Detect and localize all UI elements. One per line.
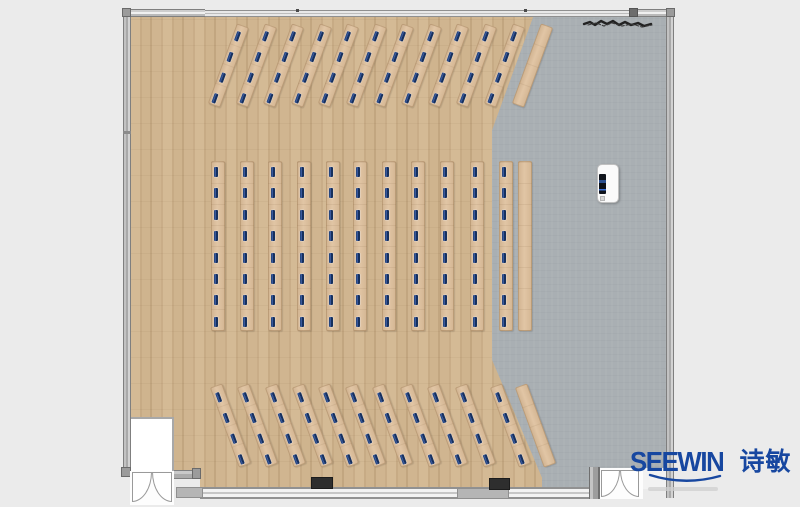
seat-marker	[364, 51, 371, 62]
seat-marker	[420, 433, 427, 444]
seat-marker	[474, 51, 481, 62]
seat-marker	[243, 274, 247, 284]
seat-marker	[385, 274, 389, 284]
seat-marker	[356, 295, 360, 305]
seat-marker	[438, 72, 445, 83]
seat-marker	[426, 30, 433, 41]
seat-marker	[211, 92, 218, 103]
presenter-podium	[597, 164, 619, 203]
seat-marker	[271, 231, 275, 241]
seat-marker	[281, 51, 288, 62]
seat-marker	[502, 231, 506, 241]
seat-marker	[447, 433, 454, 444]
sketch-mark	[582, 13, 654, 29]
seat-marker	[230, 433, 237, 444]
seat-marker	[277, 412, 284, 423]
seat-marker	[321, 92, 328, 103]
seat-marker	[502, 167, 506, 177]
seat-marker	[502, 274, 506, 284]
seat-marker	[345, 453, 352, 464]
entry-alcove	[131, 417, 174, 472]
seat-marker	[273, 72, 280, 83]
seat-marker	[300, 167, 304, 177]
seat-marker	[297, 391, 304, 402]
right-wall	[666, 9, 674, 498]
seat-marker	[271, 295, 275, 305]
seat-marker	[414, 210, 418, 220]
left-wall	[123, 9, 131, 468]
seat-marker	[473, 274, 477, 284]
seat-marker	[502, 295, 506, 305]
seat-marker	[218, 72, 225, 83]
seat-marker	[329, 253, 333, 263]
seat-marker	[329, 295, 333, 305]
seat-marker	[261, 30, 268, 41]
seat-marker	[329, 167, 333, 177]
seat-marker	[338, 433, 345, 444]
seat-marker	[372, 453, 379, 464]
brand-chinese-name: 诗敏	[739, 449, 791, 476]
seat-marker	[411, 72, 418, 83]
seat-marker	[502, 51, 509, 62]
seat-marker	[214, 253, 218, 263]
seat-marker	[330, 412, 337, 423]
seat-marker	[239, 92, 246, 103]
seat-marker	[233, 30, 240, 41]
seat-marker	[405, 391, 412, 402]
seat-marker	[356, 188, 360, 198]
seat-marker	[243, 231, 247, 241]
seat-marker	[222, 412, 229, 423]
seat-marker	[384, 412, 391, 423]
seat-marker	[271, 188, 275, 198]
seat-marker	[391, 51, 398, 62]
seat-marker	[214, 317, 218, 327]
seat-marker	[446, 51, 453, 62]
desk	[268, 161, 282, 331]
seat-marker	[319, 453, 326, 464]
seat-marker	[439, 412, 446, 423]
seat-marker	[309, 51, 316, 62]
seat-marker	[300, 274, 304, 284]
seat-marker	[473, 253, 477, 263]
seat-marker	[487, 92, 494, 103]
seat-marker	[385, 231, 389, 241]
seat-marker	[432, 391, 439, 402]
seat-marker	[466, 72, 473, 83]
seat-marker	[271, 167, 275, 177]
seat-marker	[453, 30, 460, 41]
door-jamb	[589, 467, 600, 499]
desk	[240, 161, 254, 331]
wall-column-block	[311, 477, 333, 489]
desk	[470, 161, 484, 331]
corner-post	[122, 8, 131, 17]
seat-marker	[356, 274, 360, 284]
seat-marker	[264, 453, 271, 464]
seat-marker	[454, 453, 461, 464]
seat-marker	[510, 433, 517, 444]
seat-marker	[215, 391, 222, 402]
seat-marker	[371, 30, 378, 41]
seat-marker	[329, 210, 333, 220]
seat-marker	[414, 188, 418, 198]
seat-marker	[246, 72, 253, 83]
seat-marker	[443, 231, 447, 241]
seat-marker	[414, 253, 418, 263]
seat-marker	[214, 231, 218, 241]
seat-marker	[343, 30, 350, 41]
seat-marker	[431, 92, 438, 103]
seat-marker	[443, 188, 447, 198]
seat-marker	[242, 391, 249, 402]
seat-marker	[414, 317, 418, 327]
seat-marker	[443, 253, 447, 263]
seat-marker	[214, 295, 218, 305]
seat-marker	[356, 210, 360, 220]
seat-marker	[460, 391, 467, 402]
desk	[499, 161, 513, 331]
seat-marker	[473, 210, 477, 220]
seat-marker	[300, 295, 304, 305]
desk	[326, 161, 340, 331]
desk	[411, 161, 425, 331]
seat-marker	[419, 51, 426, 62]
seat-marker	[301, 72, 308, 83]
seat-marker	[495, 391, 502, 402]
window-sill-block	[176, 487, 203, 498]
desk	[382, 161, 396, 331]
seat-marker	[473, 167, 477, 177]
seat-marker	[271, 317, 275, 327]
side-table	[518, 161, 532, 331]
seat-marker	[443, 317, 447, 327]
seat-marker	[376, 92, 383, 103]
seat-marker	[214, 210, 218, 220]
seat-marker	[377, 391, 384, 402]
desk	[440, 161, 454, 331]
seat-marker	[357, 412, 364, 423]
seat-marker	[300, 317, 304, 327]
seat-marker	[214, 274, 218, 284]
wall-column-block	[489, 478, 510, 490]
seat-marker	[414, 274, 418, 284]
seat-marker	[349, 92, 356, 103]
seat-marker	[271, 274, 275, 284]
seat-marker	[300, 188, 304, 198]
seat-marker	[300, 253, 304, 263]
seat-marker	[404, 92, 411, 103]
seat-marker	[243, 295, 247, 305]
seat-marker	[385, 253, 389, 263]
podium-vent	[600, 196, 605, 201]
seat-marker	[502, 317, 506, 327]
seat-marker	[443, 295, 447, 305]
seat-marker	[243, 188, 247, 198]
seat-marker	[473, 295, 477, 305]
seat-marker	[443, 274, 447, 284]
podium-screen	[599, 174, 606, 194]
seat-marker	[356, 167, 360, 177]
top-window-band	[205, 10, 629, 17]
seat-marker	[257, 433, 264, 444]
seat-marker	[304, 412, 311, 423]
seat-marker	[312, 433, 319, 444]
seat-marker	[323, 391, 330, 402]
seat-marker	[443, 210, 447, 220]
seat-marker	[398, 30, 405, 41]
window-joint-tick	[524, 9, 527, 12]
seat-marker	[502, 412, 509, 423]
logo-shadow	[648, 487, 718, 491]
wall-post	[192, 468, 201, 479]
seat-marker	[243, 253, 247, 263]
seat-marker	[356, 317, 360, 327]
seat-marker	[502, 253, 506, 263]
seat-marker	[266, 92, 273, 103]
seat-marker	[300, 231, 304, 241]
seat-marker	[329, 188, 333, 198]
floor-plan-canvas: SEEWIN 诗敏	[0, 0, 800, 507]
seat-marker	[365, 433, 372, 444]
seat-marker	[300, 210, 304, 220]
seat-marker	[350, 391, 357, 402]
seat-marker	[414, 231, 418, 241]
seat-marker	[214, 188, 218, 198]
brand-logo: SEEWIN 诗敏	[630, 449, 795, 493]
bottom-window-band	[200, 487, 590, 499]
seat-marker	[292, 453, 299, 464]
seat-marker	[385, 167, 389, 177]
seat-marker	[467, 412, 474, 423]
seat-marker	[271, 253, 275, 263]
seat-marker	[294, 92, 301, 103]
seat-marker	[329, 274, 333, 284]
seat-marker	[475, 433, 482, 444]
seat-marker	[316, 30, 323, 41]
window-joint-tick	[296, 9, 299, 12]
seat-marker	[271, 210, 275, 220]
seat-marker	[214, 167, 218, 177]
brand-swoosh-icon	[646, 473, 726, 485]
seat-marker	[502, 188, 506, 198]
seat-marker	[328, 72, 335, 83]
seat-marker	[356, 72, 363, 83]
brand-wordmark: SEEWIN	[630, 449, 723, 475]
seat-marker	[392, 433, 399, 444]
seat-marker	[443, 167, 447, 177]
seat-marker	[249, 412, 256, 423]
corner-post	[666, 8, 675, 17]
seat-marker	[481, 30, 488, 41]
desk	[297, 161, 311, 331]
seat-marker	[356, 231, 360, 241]
seat-marker	[285, 433, 292, 444]
seat-marker	[385, 317, 389, 327]
seat-marker	[473, 188, 477, 198]
seat-marker	[385, 188, 389, 198]
seat-marker	[494, 72, 501, 83]
seat-marker	[356, 253, 360, 263]
seat-marker	[243, 210, 247, 220]
seat-marker	[385, 210, 389, 220]
seat-marker	[237, 453, 244, 464]
wall-joint	[123, 131, 131, 134]
seat-marker	[473, 317, 477, 327]
seat-marker	[399, 453, 406, 464]
seat-marker	[414, 167, 418, 177]
seat-marker	[385, 295, 389, 305]
seat-marker	[412, 412, 419, 423]
seat-marker	[502, 210, 506, 220]
seat-marker	[329, 317, 333, 327]
desk	[211, 161, 225, 331]
seat-marker	[270, 391, 277, 402]
seat-marker	[482, 453, 489, 464]
seat-marker	[383, 72, 390, 83]
seat-marker	[509, 30, 516, 41]
seat-marker	[254, 51, 261, 62]
seat-marker	[243, 317, 247, 327]
seat-marker	[336, 51, 343, 62]
seat-marker	[427, 453, 434, 464]
top-wall-segment	[131, 9, 205, 17]
seat-marker	[329, 231, 333, 241]
desk	[353, 161, 367, 331]
seat-marker	[226, 51, 233, 62]
seat-marker	[517, 453, 524, 464]
seat-marker	[459, 92, 466, 103]
seat-marker	[288, 30, 295, 41]
seat-marker	[473, 231, 477, 241]
seat-marker	[414, 295, 418, 305]
seat-marker	[243, 167, 247, 177]
